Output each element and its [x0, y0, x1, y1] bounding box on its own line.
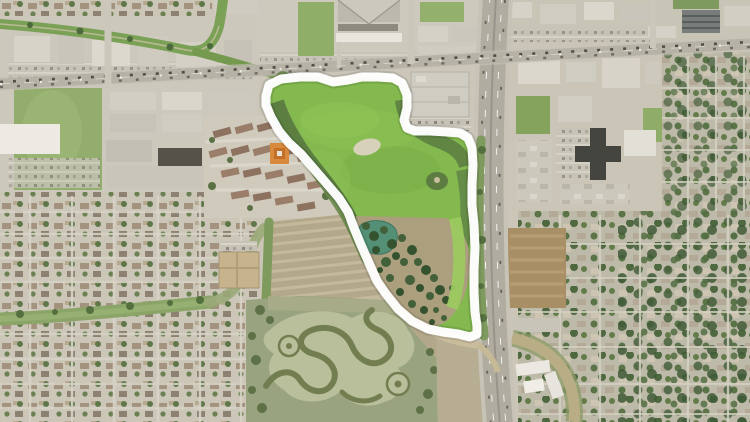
satellite-map — [0, 0, 750, 422]
campus-lawn — [298, 2, 334, 56]
school-building — [219, 241, 259, 288]
satellite-map-canvas — [0, 0, 750, 422]
residential-east-north — [662, 52, 750, 211]
white-roof-building — [0, 124, 60, 154]
retail-district-east — [506, 44, 662, 211]
campus-lawn-east — [420, 2, 464, 22]
retail-district-north — [480, 0, 750, 44]
warehouse-building — [409, 72, 471, 131]
lawn — [516, 96, 550, 134]
